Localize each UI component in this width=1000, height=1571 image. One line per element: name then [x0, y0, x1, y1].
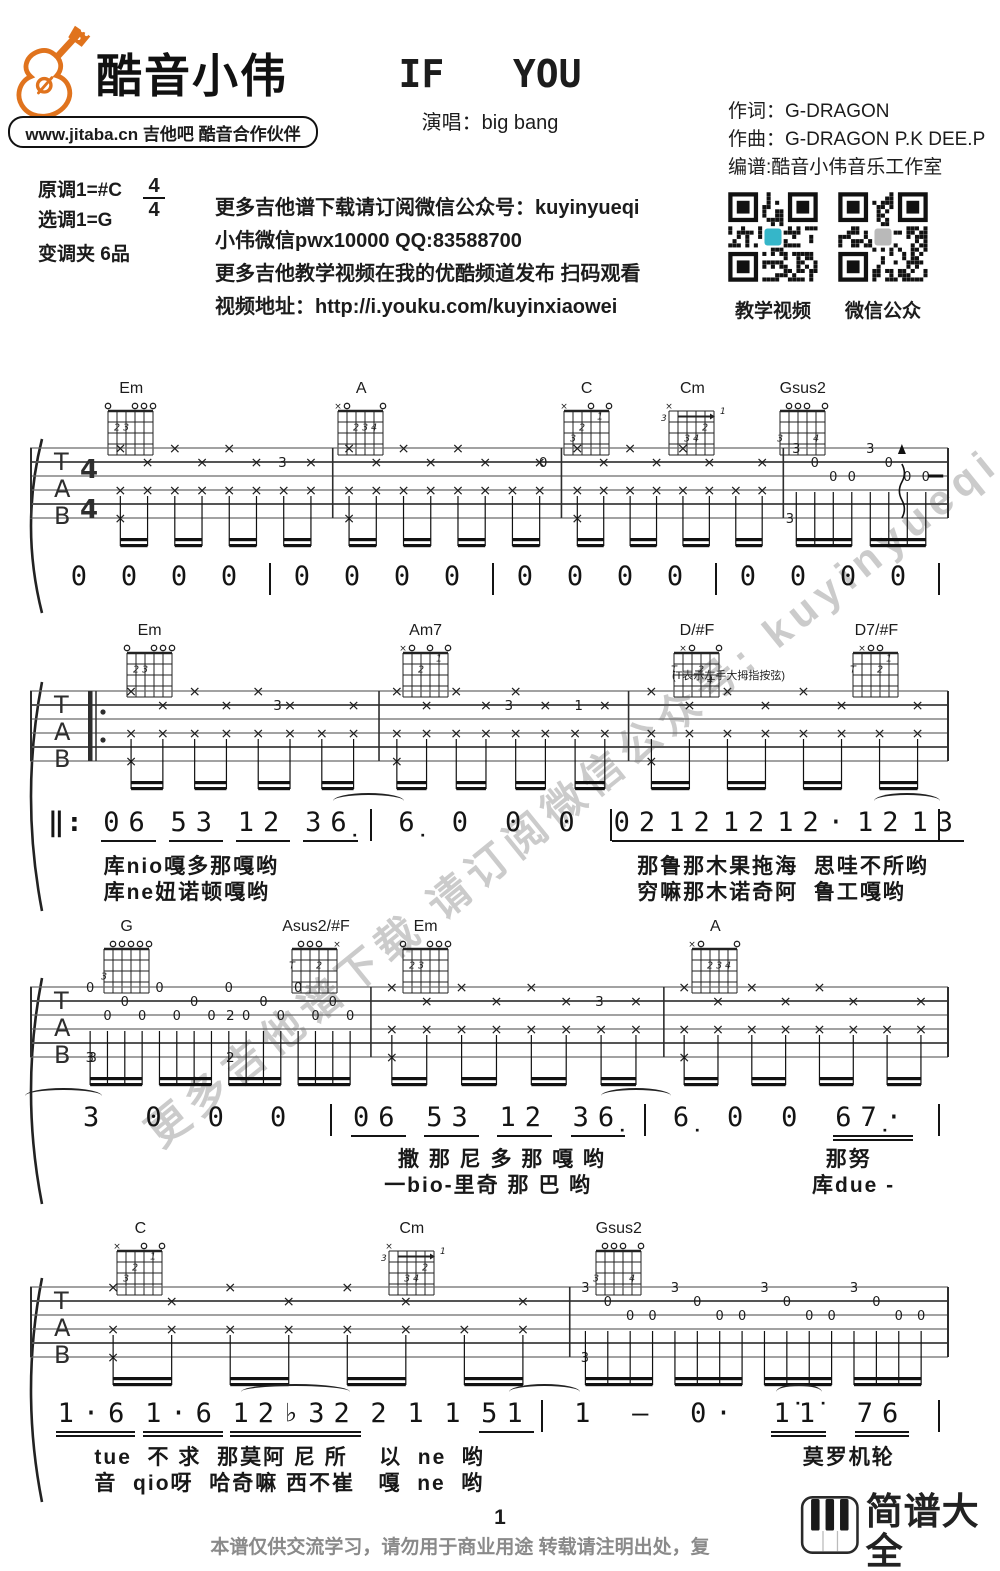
svg-text:A: A — [54, 1314, 71, 1342]
melody-note-group: 1̇1̇ — [771, 1397, 826, 1433]
chord-diagram-Cm: Cm×31234 — [659, 380, 725, 462]
melody-note-group: 0 — [292, 560, 321, 594]
svg-text:×: × — [630, 1022, 642, 1038]
svg-text:2: 2 — [418, 665, 424, 676]
melody-note-group: 0 — [515, 560, 544, 594]
chord-name: C — [554, 380, 620, 397]
svg-text:×: × — [283, 1294, 295, 1310]
svg-text:×: × — [689, 940, 697, 950]
melody-note-group: 12 — [721, 806, 776, 842]
melody-barline — [938, 809, 940, 841]
melody-note-group: 0 — [565, 560, 594, 594]
svg-text:×: × — [343, 442, 355, 457]
disclaimer-text: 本谱仅供交流学习，请勿用于商业用途 转载请注明出处，复 — [110, 1532, 810, 1559]
svg-text:×: × — [169, 442, 181, 457]
melody-note-group: 12· — [775, 806, 855, 842]
system-brace — [16, 1275, 46, 1505]
svg-text:×: × — [305, 483, 317, 499]
melody-barline — [330, 1104, 332, 1136]
svg-text:×: × — [166, 1322, 178, 1338]
chord-name: Cm — [659, 380, 725, 397]
svg-text:×: × — [125, 685, 137, 700]
svg-text:×: × — [746, 981, 758, 996]
svg-text:×: × — [166, 1294, 178, 1310]
tie-arc — [874, 793, 939, 809]
svg-text:×: × — [107, 1322, 119, 1338]
svg-text:0: 0 — [103, 1009, 111, 1024]
svg-text:×: × — [847, 994, 859, 1010]
brand-name: 简谱大全 — [866, 1492, 1000, 1571]
svg-text:×: × — [348, 726, 360, 742]
chord-diagram-G: G3 — [94, 918, 160, 1000]
svg-text:×: × — [490, 994, 502, 1010]
lyric-text: 库nio嘎多那嘎哟 — [104, 850, 280, 880]
system-brace — [16, 679, 46, 914]
svg-text:3: 3 — [362, 423, 368, 434]
svg-text:×: × — [458, 1322, 470, 1338]
melody-measure: 0000 — [48, 560, 269, 594]
svg-text:×: × — [624, 442, 636, 457]
chord-grid: ×31234 — [379, 1237, 445, 1297]
svg-text:3: 3 — [278, 455, 287, 471]
credit-line-2: 作曲：G-DRAGON P.K DEE.P — [728, 126, 985, 154]
chord-grid: ×123 — [554, 397, 620, 457]
svg-text:×: × — [157, 726, 169, 742]
svg-text:×: × — [650, 455, 662, 471]
melody-note-group: 36̣ — [571, 1101, 626, 1137]
svg-text:×: × — [510, 726, 522, 742]
melody-note-group: 3 — [81, 1101, 110, 1135]
chord-grid: ×31234 — [659, 397, 725, 457]
svg-text:×: × — [400, 1294, 412, 1310]
melody-barline — [644, 1104, 646, 1136]
svg-text:3: 3 — [273, 698, 282, 714]
melody-note-group: 06 — [101, 806, 156, 842]
svg-text:×: × — [107, 1281, 119, 1296]
chord-grid: 3 — [94, 935, 160, 995]
melody-note-group: 1 — [572, 1397, 601, 1431]
lyric-text: 穷嘛那木诺奇阿 鲁工嘎哟 — [637, 876, 906, 906]
svg-text:×: × — [571, 442, 583, 457]
svg-text:3: 3 — [418, 961, 424, 972]
svg-text:B: B — [54, 1041, 70, 1069]
svg-text:2: 2 — [877, 665, 883, 676]
svg-text:A: A — [54, 718, 71, 746]
chord-name: D7/#F — [843, 622, 909, 639]
svg-text:×: × — [125, 726, 137, 742]
melody-note-group: 12 — [497, 1101, 552, 1137]
melody-note-group: — — [630, 1397, 659, 1431]
svg-text:×: × — [223, 483, 235, 499]
chord-name: Em — [117, 622, 183, 639]
svg-text:×: × — [595, 1022, 607, 1038]
svg-text:2: 2 — [707, 961, 713, 972]
melody-barline — [541, 1400, 543, 1432]
svg-text:×: × — [341, 1322, 353, 1338]
promo-text: 更多吉他谱下载请订阅微信公众号：kuyinyueqi小伟微信pwx10000 Q… — [215, 192, 641, 324]
svg-text:1: 1 — [886, 654, 892, 665]
svg-text:×: × — [348, 698, 360, 714]
svg-text:3: 3 — [581, 1281, 589, 1296]
svg-text:1: 1 — [436, 654, 442, 665]
watermark-text: 更多吉他谱下载 请订阅微信公众号: kuyinyueqi — [131, 430, 1000, 1159]
credits: 作词：G-DRAGON作曲：G-DRAGON P.K DEE.P编谱:酷音小伟音… — [728, 98, 985, 182]
svg-text:×: × — [196, 455, 208, 471]
melody-note-group: 2 — [368, 1397, 397, 1431]
chord-name: Asus2/#F — [282, 918, 348, 935]
svg-text:×: × — [278, 483, 290, 499]
site-logo-text: 酷音小伟 — [96, 40, 288, 106]
svg-text:×: × — [400, 1322, 412, 1338]
svg-text:×: × — [169, 483, 181, 499]
svg-text:×: × — [780, 994, 792, 1010]
tie-arc — [601, 1088, 672, 1104]
singer-label: 演唱：big bang — [360, 106, 620, 135]
melody-note-group: 6̣ — [671, 1101, 700, 1135]
svg-text:0: 0 — [811, 456, 819, 471]
svg-text:×: × — [847, 1022, 859, 1038]
original-key: 原调1=#C — [38, 175, 122, 202]
svg-text:×: × — [859, 644, 867, 654]
svg-text:0: 0 — [155, 981, 163, 996]
repeat-start-sign: ‖: — [48, 806, 85, 840]
chord-diagram-A: A×234 — [682, 918, 748, 1000]
svg-text:4: 4 — [813, 434, 819, 445]
svg-text:×: × — [370, 455, 382, 471]
svg-text:3: 3 — [661, 414, 667, 424]
svg-text:3: 3 — [866, 442, 874, 457]
svg-text:T: T — [850, 665, 857, 676]
svg-text:×: × — [703, 483, 715, 499]
svg-text:0: 0 — [539, 455, 548, 471]
svg-text:3: 3 — [123, 1274, 129, 1285]
svg-text:×: × — [598, 455, 610, 471]
svg-text:B: B — [54, 1341, 70, 1369]
melody-note-group: 13 — [910, 806, 965, 842]
svg-text:×: × — [421, 994, 433, 1010]
svg-text:3: 3 — [786, 512, 794, 527]
melody-note-group: 0 — [392, 560, 421, 594]
svg-text:0: 0 — [848, 470, 856, 485]
svg-text:×: × — [385, 1242, 393, 1252]
svg-text:×: × — [721, 726, 733, 742]
chord-grid: ×T21 — [843, 639, 909, 699]
svg-text:×: × — [452, 442, 464, 457]
svg-text:A: A — [54, 475, 71, 503]
capo-position: 变调夹 6品 — [38, 239, 130, 266]
svg-text:0: 0 — [225, 981, 233, 996]
svg-text:0: 0 — [173, 1009, 181, 1024]
melody-note-group: 12♭32 — [230, 1397, 360, 1433]
chord-name: C — [107, 1220, 173, 1237]
svg-text:×: × — [666, 402, 674, 412]
svg-text:×: × — [677, 442, 689, 457]
svg-text:×: × — [915, 994, 927, 1010]
chord-diagram-Em: Em23 — [117, 622, 183, 704]
svg-text:×: × — [479, 483, 491, 499]
tie-arc — [25, 1088, 101, 1104]
promo-line-3: 更多吉他教学视频在我的优酷频道发布 扫码观看 — [215, 258, 641, 291]
qr-label-1: 教学视频 — [724, 296, 822, 323]
svg-text:×: × — [399, 644, 407, 654]
svg-text:3: 3 — [671, 1281, 679, 1296]
time-signature: 4 4 — [143, 176, 165, 220]
svg-text:×: × — [677, 483, 689, 499]
svg-text:×: × — [517, 1322, 529, 1338]
svg-text:×: × — [525, 981, 537, 996]
svg-text:×: × — [284, 726, 296, 742]
svg-text:×: × — [678, 981, 690, 996]
svg-text:×: × — [189, 726, 201, 742]
svg-text:×: × — [141, 455, 153, 471]
svg-text:×: × — [560, 1022, 572, 1038]
svg-text:×: × — [252, 685, 264, 700]
svg-text:×: × — [780, 1022, 792, 1038]
svg-text:0: 0 — [738, 1309, 746, 1324]
chord-diagram-D7/#F: D7/#F×T21 — [843, 622, 909, 704]
melody-barline — [610, 809, 612, 841]
svg-text:B: B — [54, 502, 70, 530]
svg-text:×: × — [571, 511, 583, 527]
svg-text:×: × — [421, 1022, 433, 1038]
chord-diagram-C: C×123 — [554, 380, 620, 462]
svg-text:1: 1 — [440, 1247, 445, 1257]
svg-text:×: × — [759, 726, 771, 742]
melody-note-group: 1 — [405, 1397, 434, 1431]
melody-note-group: 0 — [779, 1101, 808, 1135]
svg-text:×: × — [797, 685, 809, 700]
svg-text:×: × — [678, 1022, 690, 1038]
svg-text:×: × — [756, 483, 768, 499]
svg-text:3: 3 — [101, 972, 107, 983]
lyric-text: 音 qio呀 哈奇嘛 西不崔 嘎 ne 哟 — [94, 1467, 484, 1497]
svg-text:×: × — [452, 483, 464, 499]
svg-text:×: × — [370, 483, 382, 499]
melody-note-group: 0 — [268, 1101, 297, 1135]
promo-line-1: 更多吉他谱下载请订阅微信公众号：kuyinyueqi — [215, 192, 641, 225]
svg-text:×: × — [220, 698, 232, 714]
svg-text:×: × — [599, 698, 611, 714]
svg-text:×: × — [712, 1022, 724, 1038]
svg-text:×: × — [881, 1022, 893, 1038]
chord-name: Gsus2 — [770, 380, 836, 397]
svg-text:×: × — [125, 754, 137, 770]
svg-text:1: 1 — [574, 698, 583, 714]
svg-text:T: T — [53, 987, 69, 1015]
svg-text:×: × — [114, 442, 126, 457]
svg-text:×: × — [456, 1022, 468, 1038]
svg-text:3: 3 — [792, 442, 800, 457]
tab-staff: TAB××××××××××××××××33000300030003000 — [30, 1281, 950, 1393]
time-signature-denominator: 4 — [143, 200, 165, 220]
svg-text:0: 0 — [190, 995, 198, 1010]
svg-text:×: × — [506, 483, 518, 499]
svg-text:×: × — [539, 698, 551, 714]
melody-note-group: 06 — [351, 1101, 406, 1137]
svg-text:×: × — [284, 698, 296, 714]
melody-note-group: 1·6 — [143, 1397, 223, 1433]
chord-diagram-Cm: Cm×31234 — [379, 1220, 445, 1302]
svg-text:0: 0 — [827, 1309, 835, 1324]
svg-text:×: × — [746, 1022, 758, 1038]
promo-line-4: 视频地址：http://i.youku.com/kuyinxiaowei — [215, 291, 641, 324]
svg-text:×: × — [560, 402, 568, 412]
svg-text:×: × — [391, 726, 403, 742]
svg-text:×: × — [114, 483, 126, 499]
svg-text:3: 3 — [850, 1281, 858, 1296]
svg-text:×: × — [712, 994, 724, 1010]
svg-text:×: × — [220, 726, 232, 742]
svg-text:×: × — [480, 698, 492, 714]
svg-text:×: × — [560, 994, 572, 1010]
lyric-text: 库ne妞诺顿嘎哟 — [104, 876, 271, 906]
svg-text:×: × — [250, 455, 262, 471]
svg-text:×: × — [224, 1281, 236, 1296]
svg-text:×: × — [534, 455, 546, 471]
svg-text:×: × — [252, 726, 264, 742]
svg-text:×: × — [730, 483, 742, 499]
svg-text:×: × — [250, 483, 262, 499]
svg-text:×: × — [525, 1022, 537, 1038]
time-signature-numerator: 4 — [143, 176, 165, 196]
tab-staff: TAB××××××××××××××××3××××××××××××××××31××… — [30, 685, 950, 797]
svg-text:3: 3 — [581, 1351, 589, 1366]
melody-note-group: 1·6 — [56, 1397, 136, 1433]
melody-barline — [269, 563, 271, 595]
svg-text:×: × — [517, 1294, 529, 1310]
melody-barline — [938, 563, 940, 595]
melody-note-group: 0 — [342, 560, 371, 594]
svg-text:×: × — [450, 726, 462, 742]
brand-block: 简谱大全 jianpudq.com — [800, 1492, 1000, 1571]
melody-note-group: 1 — [442, 1397, 471, 1431]
promo-line-2: 小伟微信pwx10000 QQ:83588700 — [215, 225, 641, 258]
svg-text:0: 0 — [872, 1295, 880, 1310]
lyric-text: 一bio-里奇 那 巴 哟 — [384, 1169, 592, 1199]
svg-text:0: 0 — [895, 1309, 903, 1324]
svg-text:×: × — [341, 1281, 353, 1296]
svg-text:×: × — [813, 1022, 825, 1038]
chord-grid: ×234 — [328, 397, 394, 457]
melody-note-group: 53 — [169, 806, 224, 842]
svg-text:2: 2 — [226, 1008, 235, 1024]
site-url-banner: www.jitaba.cn 吉他吧 酷音合作伙伴 — [8, 116, 318, 148]
melody-note-group: 53 — [424, 1101, 479, 1137]
svg-text:3: 3 — [88, 1050, 97, 1066]
melody-barline — [492, 563, 494, 595]
play-key: 选调1=G — [38, 205, 112, 232]
svg-text:×: × — [107, 1350, 119, 1366]
svg-text:×: × — [223, 442, 235, 457]
tie-arc — [509, 1384, 580, 1400]
svg-text:×: × — [480, 726, 492, 742]
melody-note-group: 0 — [219, 560, 248, 594]
svg-text:×: × — [490, 1022, 502, 1038]
melody-note-group: 67̣· — [833, 1101, 913, 1137]
svg-text:×: × — [305, 455, 317, 471]
melody-note-group: 51 — [479, 1397, 534, 1433]
svg-text:×: × — [425, 483, 437, 499]
svg-text:4: 4 — [725, 961, 731, 972]
svg-text:A: A — [54, 1014, 71, 1042]
svg-text:T: T — [53, 691, 69, 719]
chord-grid: 23 — [98, 397, 164, 457]
svg-text:4: 4 — [80, 495, 98, 525]
melody-note-group: 0 — [69, 560, 98, 594]
svg-text:×: × — [624, 483, 636, 499]
svg-text:×: × — [569, 726, 581, 742]
melody-measure: 0000 — [494, 560, 715, 594]
svg-text:×: × — [797, 726, 809, 742]
svg-text:3: 3 — [504, 698, 513, 714]
credit-line-1: 作词：G-DRAGON — [728, 98, 985, 126]
melody-barline — [938, 1104, 940, 1136]
melody-note-group: 12 — [236, 806, 291, 842]
jianpu-melody-line-4: 1·61·612♭32211511—0·1̇1̇76 — [48, 1397, 940, 1433]
melody-barline — [715, 563, 717, 595]
svg-text:0: 0 — [829, 470, 837, 485]
svg-text:0: 0 — [138, 1009, 146, 1024]
svg-text:0: 0 — [885, 456, 893, 471]
svg-text:0: 0 — [648, 1309, 656, 1324]
svg-text:×: × — [343, 511, 355, 527]
svg-text:×: × — [571, 483, 583, 499]
lyric-text: 那鲁那木果拖海 思哇不所哟 — [637, 850, 929, 880]
svg-text:1: 1 — [720, 407, 725, 417]
svg-text:×: × — [813, 981, 825, 996]
svg-text:2: 2 — [579, 423, 585, 434]
chord-name: Am7 — [393, 622, 459, 639]
svg-text:0: 0 — [604, 1295, 612, 1310]
svg-text:×: × — [598, 483, 610, 499]
qr-code-教学视频 — [724, 188, 822, 291]
svg-text:3: 3 — [684, 434, 690, 445]
svg-text:×: × — [224, 1322, 236, 1338]
chord-name: Cm — [379, 1220, 445, 1237]
svg-text:×: × — [397, 442, 409, 457]
chord-diagram-A: A×234 — [328, 380, 394, 462]
svg-text:×: × — [420, 698, 432, 714]
melody-measure: 06531236̣ — [89, 806, 371, 842]
svg-text:×: × — [114, 511, 126, 527]
svg-text:×: × — [630, 994, 642, 1010]
melody-measure: 06531236̣ — [332, 1101, 644, 1137]
song-title: IF YOU — [360, 52, 620, 96]
chord-diagram-Gsus2: Gsus234 — [586, 1220, 652, 1302]
lyric-text: 莫罗机轮 — [803, 1441, 895, 1471]
svg-text:0: 0 — [693, 1295, 701, 1310]
guitar-logo-icon — [2, 18, 98, 118]
svg-text:×: × — [759, 698, 771, 714]
melody-note-group: 12 — [855, 806, 910, 842]
svg-text:×: × — [679, 644, 687, 654]
svg-text:4: 4 — [413, 1274, 419, 1285]
svg-text:×: × — [196, 483, 208, 499]
lyric-text: 库due - — [812, 1169, 895, 1199]
svg-text:×: × — [397, 483, 409, 499]
melody-measure: 02121212·1213 — [612, 806, 938, 842]
svg-text:T: T — [289, 961, 296, 972]
qr-code-image — [724, 188, 822, 286]
svg-text:2: 2 — [133, 665, 139, 676]
svg-text:×: × — [835, 698, 847, 714]
chord-diagram-Em: Em23 — [98, 380, 164, 462]
svg-text:×: × — [756, 455, 768, 471]
svg-text:3: 3 — [570, 434, 576, 445]
svg-text:×: × — [835, 726, 847, 742]
svg-text:×: × — [678, 1050, 690, 1066]
svg-text:×: × — [425, 455, 437, 471]
